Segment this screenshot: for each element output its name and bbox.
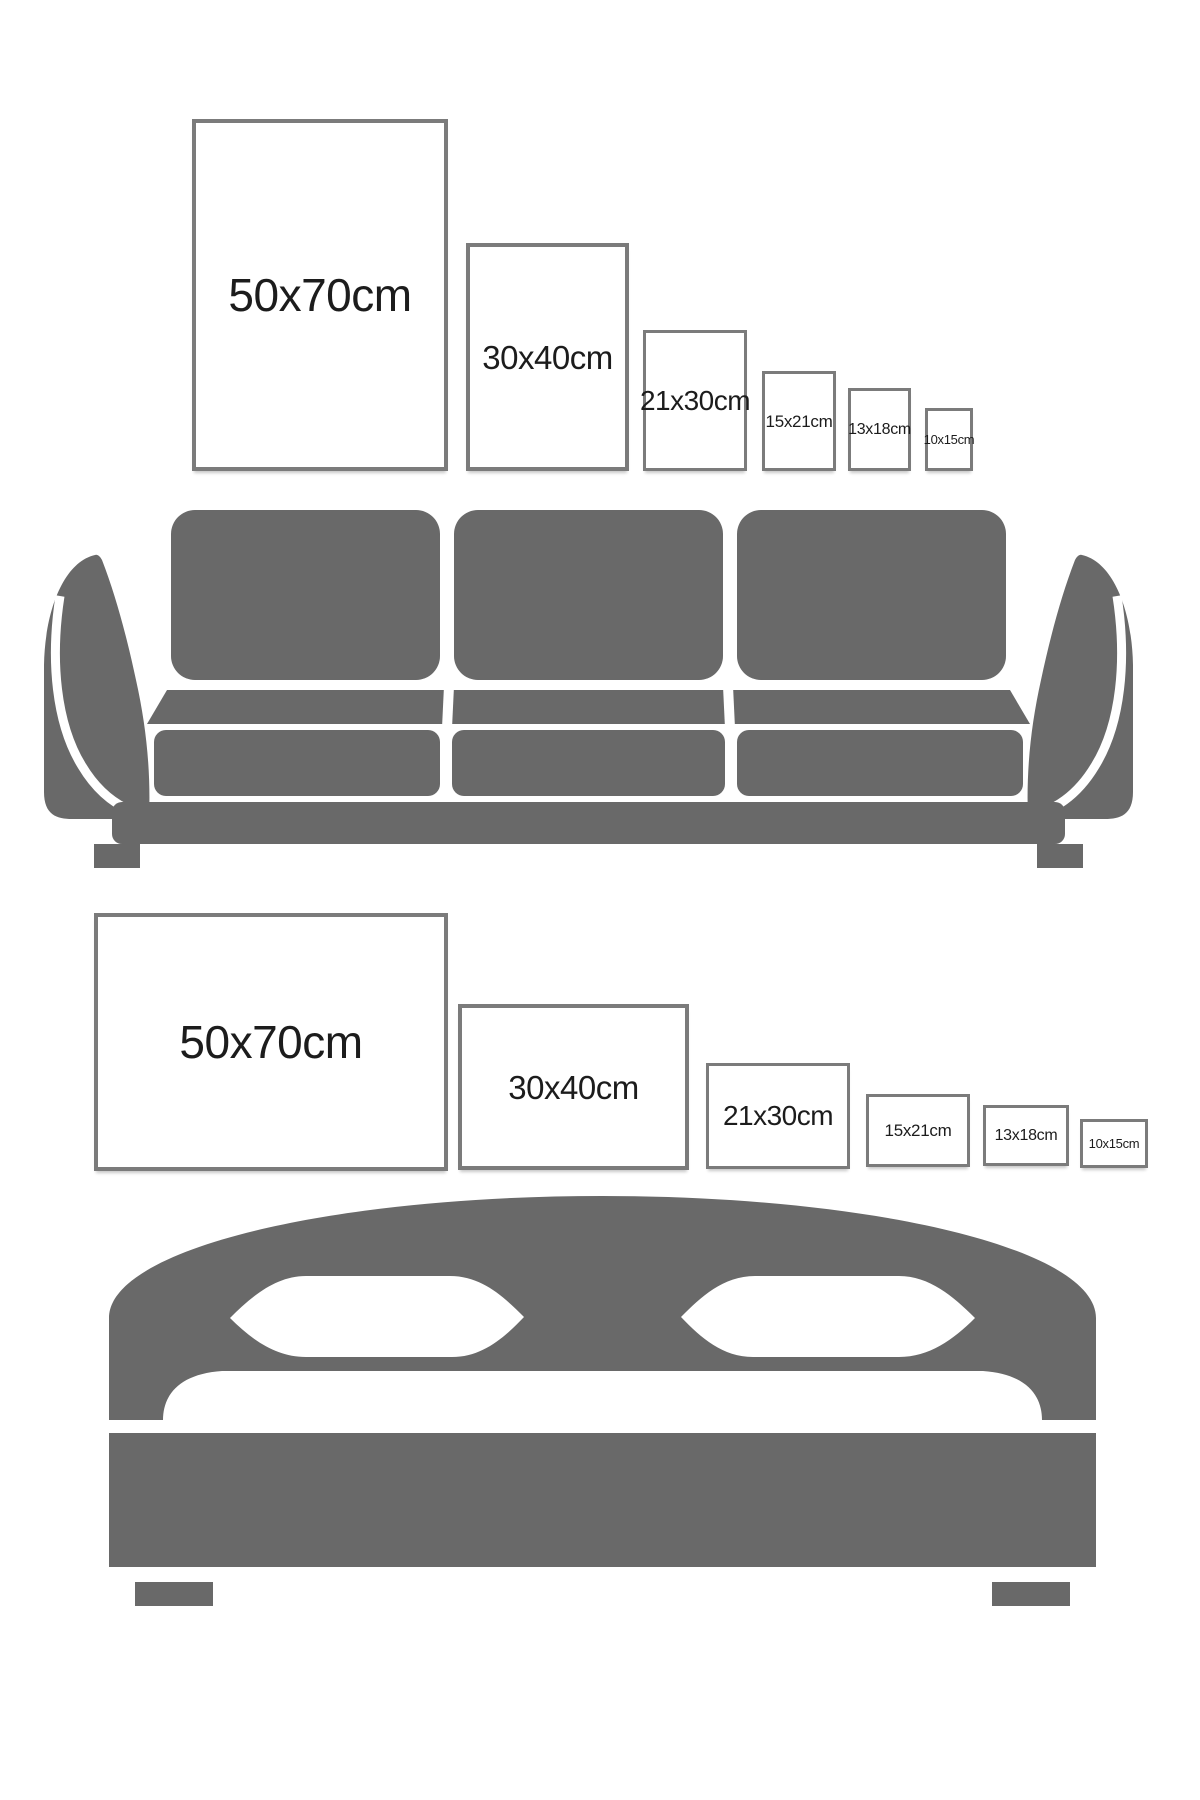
bed-headboard	[109, 1196, 1096, 1420]
sofa-seat-cushion	[737, 730, 1023, 796]
size-label-30x40: 30x40cm	[482, 341, 612, 374]
sofa-deck-divider	[447, 686, 449, 728]
sofa-back-cushion	[454, 510, 723, 680]
size-label-15x21: 15x21cm	[766, 413, 833, 430]
bed-foot-right	[992, 1582, 1070, 1606]
size-label-13x18: 13x18cm	[848, 422, 911, 438]
size-label-21x30: 21x30cm	[640, 387, 750, 415]
sofa-back-cushion	[737, 510, 1006, 680]
size-label-10x15: 10x15cm	[1089, 1137, 1140, 1150]
size-frame-50x70-landscape: 50x70cm	[94, 913, 448, 1171]
sofa-base	[112, 802, 1065, 844]
size-frame-13x18-landscape: 13x18cm	[983, 1105, 1069, 1166]
size-frame-21x30-portrait: 21x30cm	[643, 330, 747, 471]
size-frame-30x40-landscape: 30x40cm	[458, 1004, 689, 1170]
size-label-21x30: 21x30cm	[723, 1102, 833, 1130]
sofa-foot-left	[94, 844, 140, 868]
size-label-10x15: 10x15cm	[924, 433, 975, 446]
sofa-foot-right	[1037, 844, 1083, 868]
sofa-illustration	[44, 510, 1133, 868]
size-label-15x21: 15x21cm	[885, 1122, 952, 1139]
size-label-50x70: 50x70cm	[228, 272, 411, 318]
size-label-50x70: 50x70cm	[179, 1019, 362, 1065]
size-frame-15x21-portrait: 15x21cm	[762, 371, 836, 471]
sofa-deck-divider	[728, 686, 730, 728]
size-frame-21x30-landscape: 21x30cm	[706, 1063, 850, 1169]
sofa-seat-cushion	[154, 730, 440, 796]
sofa-seat-deck	[147, 690, 1030, 724]
bed-base	[109, 1433, 1096, 1567]
sofa-back-cushion	[171, 510, 440, 680]
size-label-13x18: 13x18cm	[995, 1128, 1058, 1144]
size-guide-infographic: 50x70cm 30x40cm 21x30cm 15x21cm 13x18cm …	[0, 0, 1200, 1800]
size-frame-15x21-landscape: 15x21cm	[866, 1094, 970, 1167]
size-frame-10x15-landscape: 10x15cm	[1080, 1119, 1148, 1168]
size-frame-50x70-portrait: 50x70cm	[192, 119, 448, 471]
size-frame-30x40-portrait: 30x40cm	[466, 243, 629, 471]
bed-illustration	[109, 1196, 1096, 1606]
size-frame-13x18-portrait: 13x18cm	[848, 388, 911, 471]
size-frame-10x15-portrait: 10x15cm	[925, 408, 973, 471]
sofa-seat-cushion	[452, 730, 725, 796]
bed-foot-left	[135, 1582, 213, 1606]
size-label-30x40: 30x40cm	[508, 1071, 638, 1104]
